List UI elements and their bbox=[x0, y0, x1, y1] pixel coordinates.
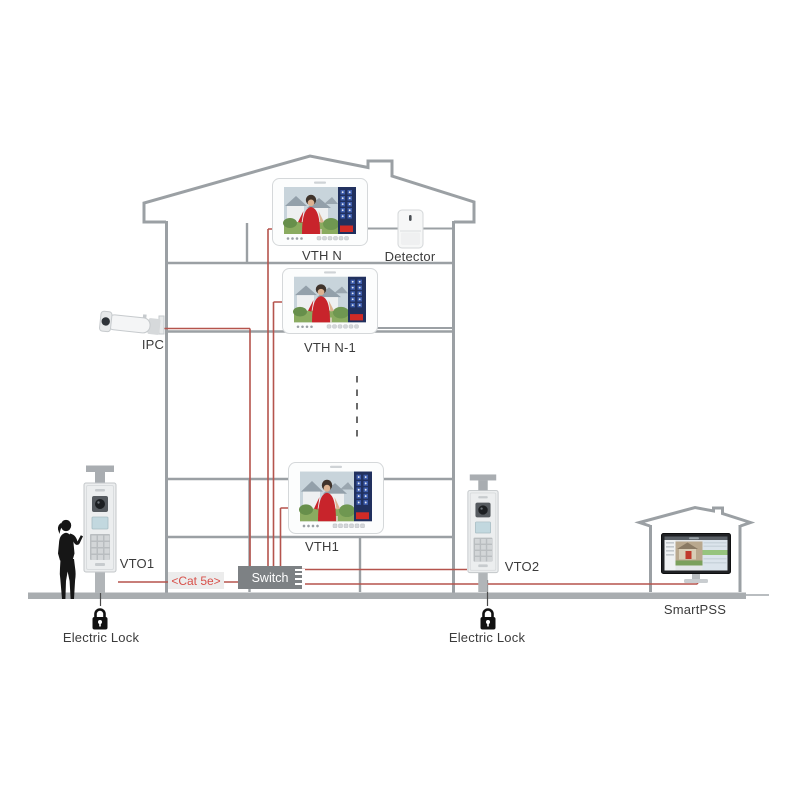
ground-line bbox=[28, 593, 769, 600]
network-switch: Switch bbox=[238, 566, 302, 589]
electric-lock-left-label: Electric Lock bbox=[63, 630, 139, 645]
vto1-label: VTO1 bbox=[120, 556, 155, 571]
ipc-label: IPC bbox=[142, 337, 164, 352]
electric-lock-right-padlock-icon bbox=[478, 606, 498, 631]
vth1-monitor bbox=[288, 462, 384, 534]
vth-n-monitor bbox=[272, 178, 368, 246]
person-silhouette-icon bbox=[45, 518, 85, 602]
electric-lock-left-padlock-icon bbox=[90, 606, 110, 631]
vto2-door-station bbox=[466, 474, 500, 592]
scene-lines bbox=[0, 0, 800, 800]
smartpss-computer bbox=[661, 533, 731, 585]
motion-detector-icon bbox=[397, 209, 424, 249]
vth1-label: VTH1 bbox=[305, 539, 339, 554]
network-wires bbox=[118, 229, 698, 584]
switch-ports-icon bbox=[295, 569, 305, 588]
intercom-system-diagram: Switch <Cat 5e> VTH N Detector VTH N-1 V… bbox=[0, 0, 800, 800]
vth-n-minus-1-monitor bbox=[282, 268, 378, 334]
vth-n-minus-1-label: VTH N-1 bbox=[304, 340, 356, 355]
vto1-door-station bbox=[82, 465, 118, 593]
detector-label: Detector bbox=[385, 249, 436, 264]
electric-lock-right-label: Electric Lock bbox=[449, 630, 525, 645]
vto2-label: VTO2 bbox=[505, 559, 540, 574]
switch-label: Switch bbox=[252, 571, 289, 585]
vth-n-label: VTH N bbox=[302, 248, 342, 263]
cat5e-cable-label: <Cat 5e> bbox=[168, 572, 224, 589]
smartpss-label: SmartPSS bbox=[664, 602, 726, 617]
